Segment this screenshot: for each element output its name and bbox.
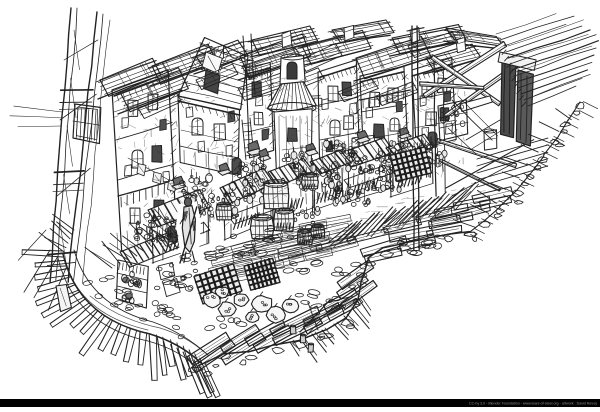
svg-text:CC-by 3.0 - Blender Foundation: CC-by 3.0 - Blender Foundation - www.tea… — [469, 402, 597, 406]
